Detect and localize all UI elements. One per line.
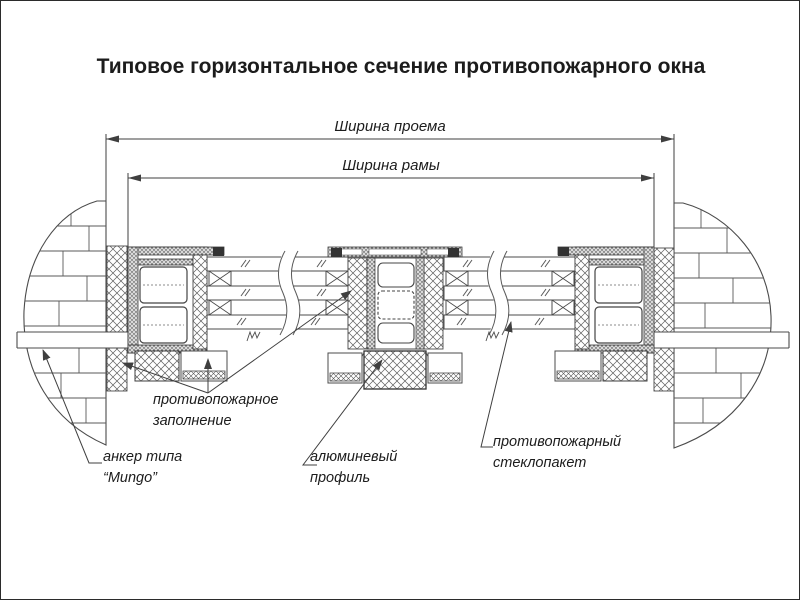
diagram-page: Типовое горизонтальное сечение противопо… [0, 0, 800, 600]
dimension-label-frame-width: Ширина рамы [128, 157, 654, 174]
center-mullion-profile [328, 247, 462, 349]
annotation-fire-filling: противопожарное заполнение [153, 390, 279, 431]
left-wall [21, 201, 107, 445]
right-frame-sill [555, 351, 647, 381]
left-frame-sill [135, 351, 227, 381]
dimension-label-opening-width: Ширина проема [106, 118, 674, 135]
anchor-bar-right [651, 332, 789, 348]
annotation-fire-glazing: противопожарный стеклопакет [493, 432, 621, 473]
glazing-run-left [207, 251, 348, 335]
section-drawing [1, 1, 800, 600]
dimension-frame-width [128, 173, 654, 247]
center-mullion-sill [328, 351, 462, 389]
glazing-run-right [444, 251, 576, 335]
right-wall [673, 203, 776, 448]
annotation-aluminum-profile: алюминевый профиль [310, 447, 397, 488]
anchor-bar-left [17, 332, 132, 348]
page-title: Типовое горизонтальное сечение противопо… [1, 55, 800, 79]
annotation-anchor-mungo: анкер типа “Mungo” [103, 447, 182, 488]
right-insulation-strip [654, 248, 674, 391]
left-insulation-strip [107, 246, 127, 391]
